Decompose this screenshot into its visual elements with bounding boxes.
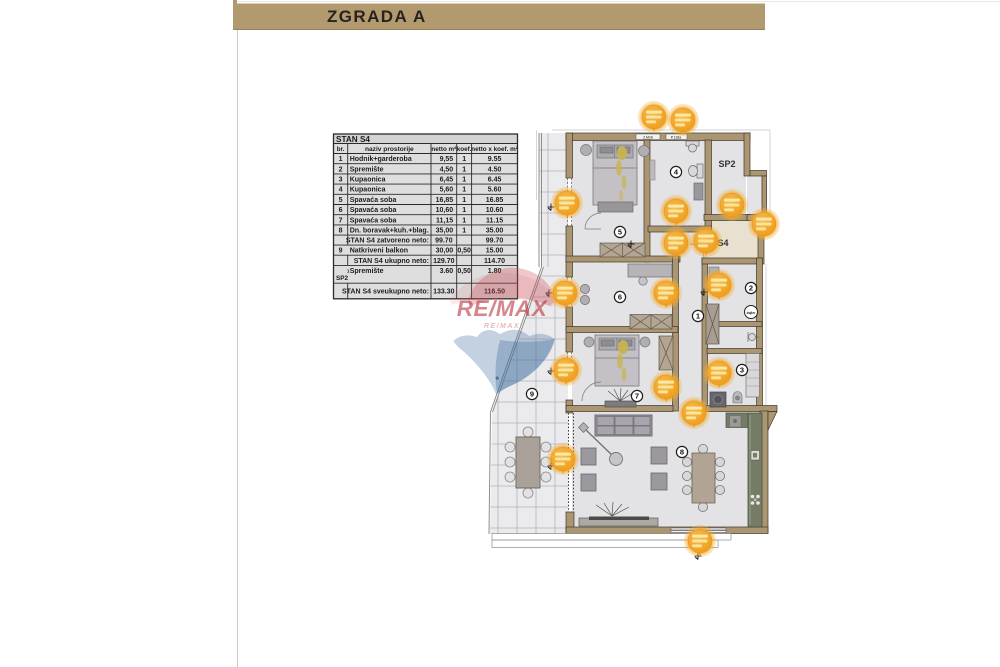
svg-text:9.55: 9.55 [488,156,502,163]
svg-text:RE/MAX: RE/MAX [457,296,549,321]
svg-text:Spavaća soba: Spavaća soba [350,207,397,214]
svg-text:7: 7 [635,392,639,401]
svg-text:3: 3 [740,366,744,375]
svg-text:5: 5 [339,197,343,204]
svg-text:4,50: 4,50 [440,166,454,173]
svg-text:SP2: SP2 [718,159,735,169]
svg-text:Natkriveni balkon: Natkriveni balkon [350,248,408,255]
svg-text:8: 8 [339,228,343,235]
svg-text:114.70: 114.70 [484,258,505,265]
svg-text:35.00: 35.00 [486,228,504,235]
svg-text:3.60: 3.60 [440,268,454,275]
svg-text:netto m²: netto m² [431,146,456,153]
svg-text:1: 1 [462,166,466,173]
svg-text:6,45: 6,45 [440,177,454,184]
svg-text:Dn. boravak+kuh.+blag.: Dn. boravak+kuh.+blag. [350,228,429,235]
svg-text:99.70: 99.70 [486,238,504,245]
svg-text:1: 1 [462,228,466,235]
svg-text:2: 2 [749,284,753,293]
svg-text:1: 1 [462,156,466,163]
svg-text:ZGRADA A: ZGRADA A [327,7,427,26]
svg-text:11,15: 11,15 [436,217,453,224]
svg-text:10,60: 10,60 [436,207,454,214]
svg-text:Kupaonica: Kupaonica [350,187,386,194]
svg-text:6: 6 [618,293,622,302]
svg-text:5: 5 [618,228,622,237]
svg-text:1: 1 [462,187,466,194]
svg-text:STAN S4 zatvoreno neto:: STAN S4 zatvoreno neto: [346,238,429,245]
svg-text:9: 9 [339,248,343,255]
svg-text:2.Mo6: 2.Mo6 [643,136,653,140]
svg-text:SP2: SP2 [336,275,349,282]
svg-text:9: 9 [530,390,534,399]
svg-text:0,50: 0,50 [457,268,471,275]
svg-text:4.50: 4.50 [488,166,502,173]
svg-text:30,00: 30,00 [436,248,454,255]
svg-text:Spremište: Spremište [350,268,384,275]
svg-text:129.70: 129.70 [433,258,455,265]
svg-text:koef.: koef. [457,146,472,153]
svg-text:9,55: 9,55 [440,156,454,163]
svg-text:Hodnik+garderoba: Hodnik+garderoba [350,156,412,163]
svg-text:Spavaća soba: Spavaća soba [350,197,397,204]
svg-text:6: 6 [339,207,343,214]
svg-text:Spavaća soba: Spavaća soba [350,217,397,224]
svg-text:STAN S4 sveukupno neto:: STAN S4 sveukupno neto: [342,289,429,296]
svg-text:1: 1 [462,207,466,214]
svg-text:STAN S4: STAN S4 [336,135,370,144]
svg-text:16,85: 16,85 [436,197,454,204]
svg-text:99.70: 99.70 [435,238,453,245]
svg-text:15.00: 15.00 [486,248,504,255]
svg-text:16.85: 16.85 [486,197,504,204]
svg-text:bojler: bojler [747,311,756,315]
svg-text:3: 3 [339,177,343,184]
svg-text:br.: br. [337,146,345,153]
svg-text:133.30: 133.30 [433,289,455,296]
svg-text:8: 8 [680,448,684,457]
svg-text:2: 2 [339,166,343,173]
svg-text:11.15: 11.15 [486,217,503,224]
svg-text:35,00: 35,00 [436,228,454,235]
svg-text:4: 4 [339,187,343,194]
svg-text:RE/MAX: RE/MAX [484,323,520,330]
svg-text:1: 1 [696,312,700,321]
svg-text:Kupaonica: Kupaonica [350,177,386,184]
svg-text:naziv prostorije: naziv prostorije [365,146,414,153]
svg-text:5,60: 5,60 [440,187,454,194]
svg-text:Spremište: Spremište [350,166,384,173]
svg-text:1: 1 [462,197,466,204]
svg-text:netto x koef. m²: netto x koef. m² [471,146,518,153]
svg-text:10.60: 10.60 [486,207,504,214]
svg-text:STAN S4 ukupno neto:: STAN S4 ukupno neto: [354,258,429,265]
svg-text:1: 1 [339,156,343,163]
svg-text:5.60: 5.60 [488,187,502,194]
svg-text:0,50: 0,50 [457,248,471,255]
svg-text:P.118a: P.118a [671,136,681,140]
svg-text:7: 7 [339,217,343,224]
svg-text:1: 1 [462,217,466,224]
svg-text:6.45: 6.45 [488,177,502,184]
svg-text:1: 1 [462,177,466,184]
